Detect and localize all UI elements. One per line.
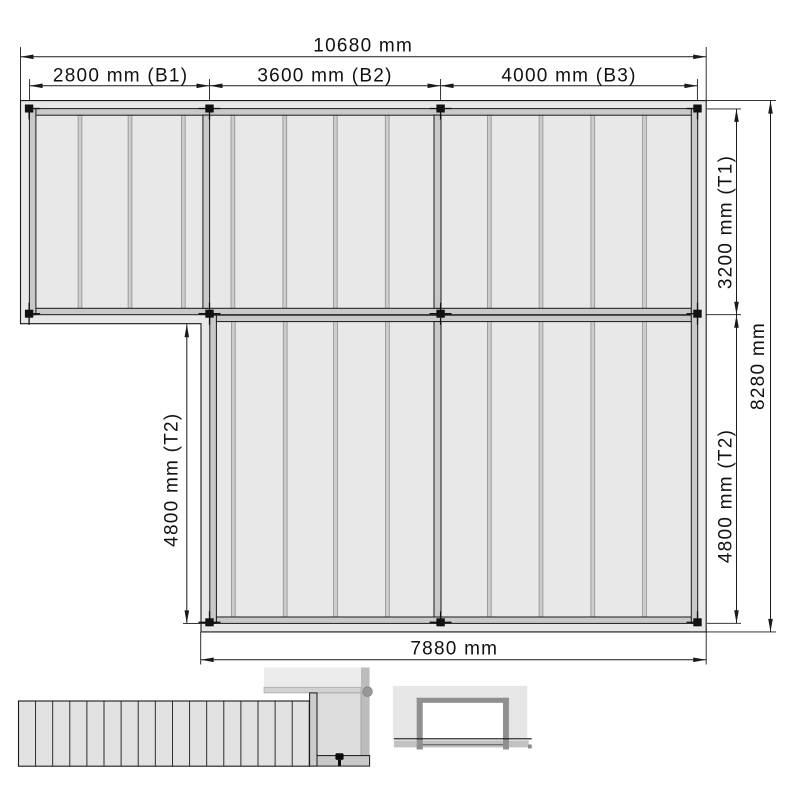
svg-text:4800 mm (T2): 4800 mm (T2) xyxy=(716,429,737,563)
svg-text:4800 mm (T2): 4800 mm (T2) xyxy=(162,413,183,547)
svg-text:2800 mm (B1): 2800 mm (B1) xyxy=(53,66,188,87)
svg-text:3600 mm (B2): 3600 mm (B2) xyxy=(257,66,392,87)
svg-text:8280 mm: 8280 mm xyxy=(748,322,769,410)
svg-text:4000 mm (B3): 4000 mm (B3) xyxy=(501,66,636,87)
svg-text:7880 mm: 7880 mm xyxy=(410,639,498,660)
svg-text:3200 mm (T1): 3200 mm (T1) xyxy=(716,155,737,289)
svg-text:10680 mm: 10680 mm xyxy=(313,36,413,57)
